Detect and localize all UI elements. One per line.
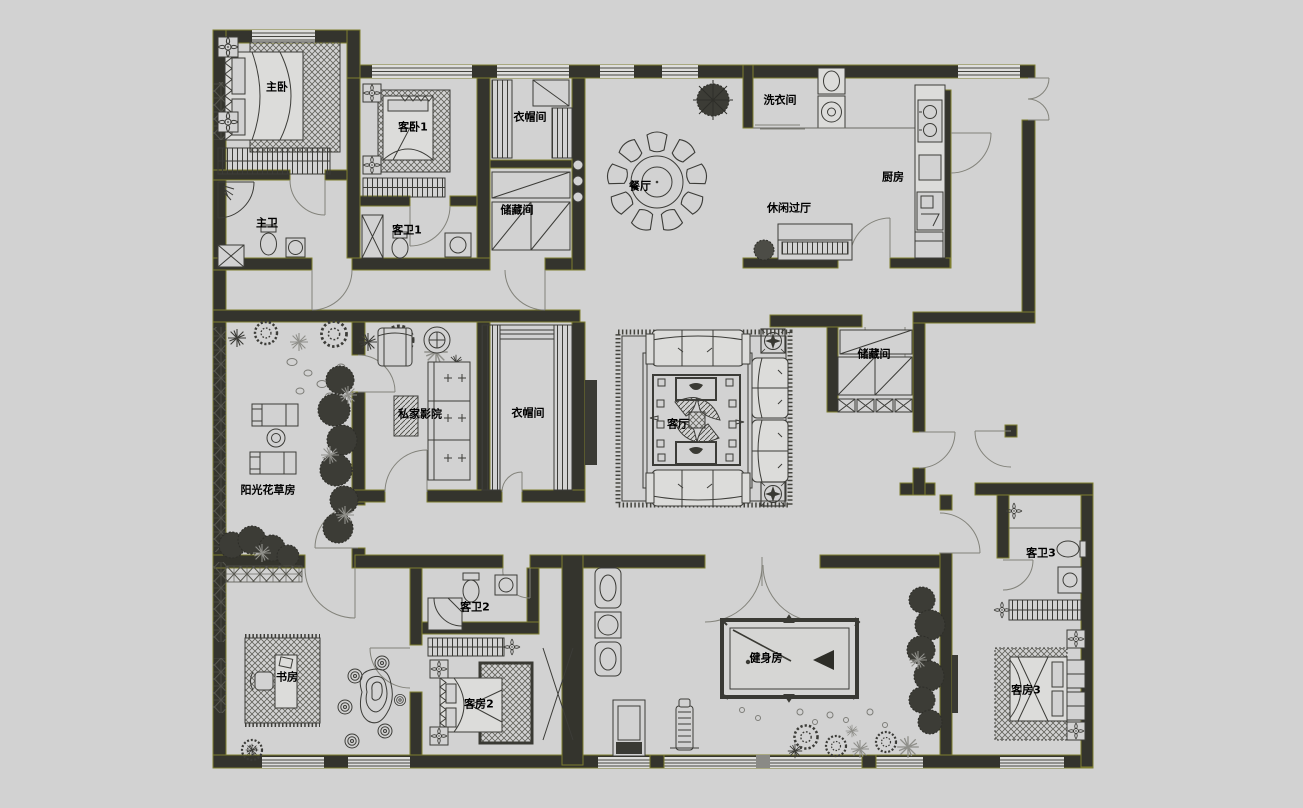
furniture-storage-middle	[838, 330, 912, 412]
furniture-guest-bathroom-2	[428, 573, 520, 656]
treadmill	[613, 700, 645, 756]
door-cloakroom-middle	[502, 472, 522, 492]
gym-seating	[595, 568, 621, 676]
door-entry-hall	[951, 133, 991, 173]
tv-panel-living	[585, 380, 597, 465]
door-storage-north	[505, 270, 545, 310]
door-master-bathroom	[290, 180, 325, 215]
furniture-private-cinema	[378, 327, 470, 480]
furniture-guest-bedroom-1	[363, 84, 450, 197]
plants-gym-floor	[740, 708, 919, 759]
window-top-entry	[958, 65, 1020, 78]
window-top-dining-2	[662, 65, 698, 78]
living-sofa-east-2	[752, 420, 788, 482]
door-cinema	[385, 450, 427, 492]
living-sofa-east-1	[752, 358, 788, 418]
door-hallway-double	[919, 431, 1011, 468]
sunroom-lounge-chairs	[250, 404, 298, 474]
door-master-suite-hall	[312, 270, 352, 310]
storage-x-boxes	[838, 399, 912, 412]
door-kitchen	[850, 218, 890, 258]
billiard-table	[722, 616, 859, 701]
door-gym-double	[705, 557, 820, 622]
dining-table	[606, 132, 708, 232]
furniture-guest-bedroom-3	[952, 503, 1085, 740]
door-main-entrance	[1028, 78, 1049, 120]
living-sofa-south	[646, 470, 750, 506]
window-bottom-study-1	[262, 757, 324, 768]
window-top-guest1	[372, 65, 472, 78]
tv-panel-bedroom3	[952, 655, 958, 713]
window-top-dining-1	[600, 65, 634, 78]
window-bottom-study-2	[348, 757, 410, 768]
floor-plan: 主卧客卧1衣帽间储藏间餐厅洗衣间休闲过厅厨房主卫客卫1私家影院衣帽间阳光花草房客…	[0, 0, 1303, 808]
furniture-study	[242, 636, 406, 760]
furniture-storage-north	[492, 160, 583, 250]
furniture-master-bedroom	[218, 37, 340, 174]
furniture-dining-room	[606, 80, 733, 232]
furniture-guest-bedroom-2	[430, 648, 573, 745]
door-guest-bedroom-3	[940, 513, 980, 553]
living-sofa-north	[646, 330, 750, 366]
plant-gym-tree	[907, 587, 945, 734]
furniture-kitchen	[915, 85, 945, 258]
furniture-gym	[595, 568, 945, 758]
window-top-cloak	[497, 65, 569, 78]
furniture-leisure-hall	[754, 224, 852, 260]
window-top-master	[252, 30, 315, 43]
floor-plan-drawing	[0, 0, 1303, 808]
door-guest-bathroom-1	[410, 206, 450, 246]
furniture-cloakroom-north	[492, 80, 572, 158]
door-study	[305, 568, 355, 618]
furniture-master-bathroom	[218, 182, 305, 267]
window-bottom-bedroom3	[1000, 757, 1064, 768]
study-rock-garden	[338, 656, 406, 748]
stepper	[670, 699, 699, 750]
furniture-living-room	[618, 329, 790, 506]
door-guest-bathroom-3	[1003, 560, 1033, 590]
furniture-guest-bathroom-1	[362, 215, 471, 258]
plant-dining-tree	[693, 80, 733, 120]
